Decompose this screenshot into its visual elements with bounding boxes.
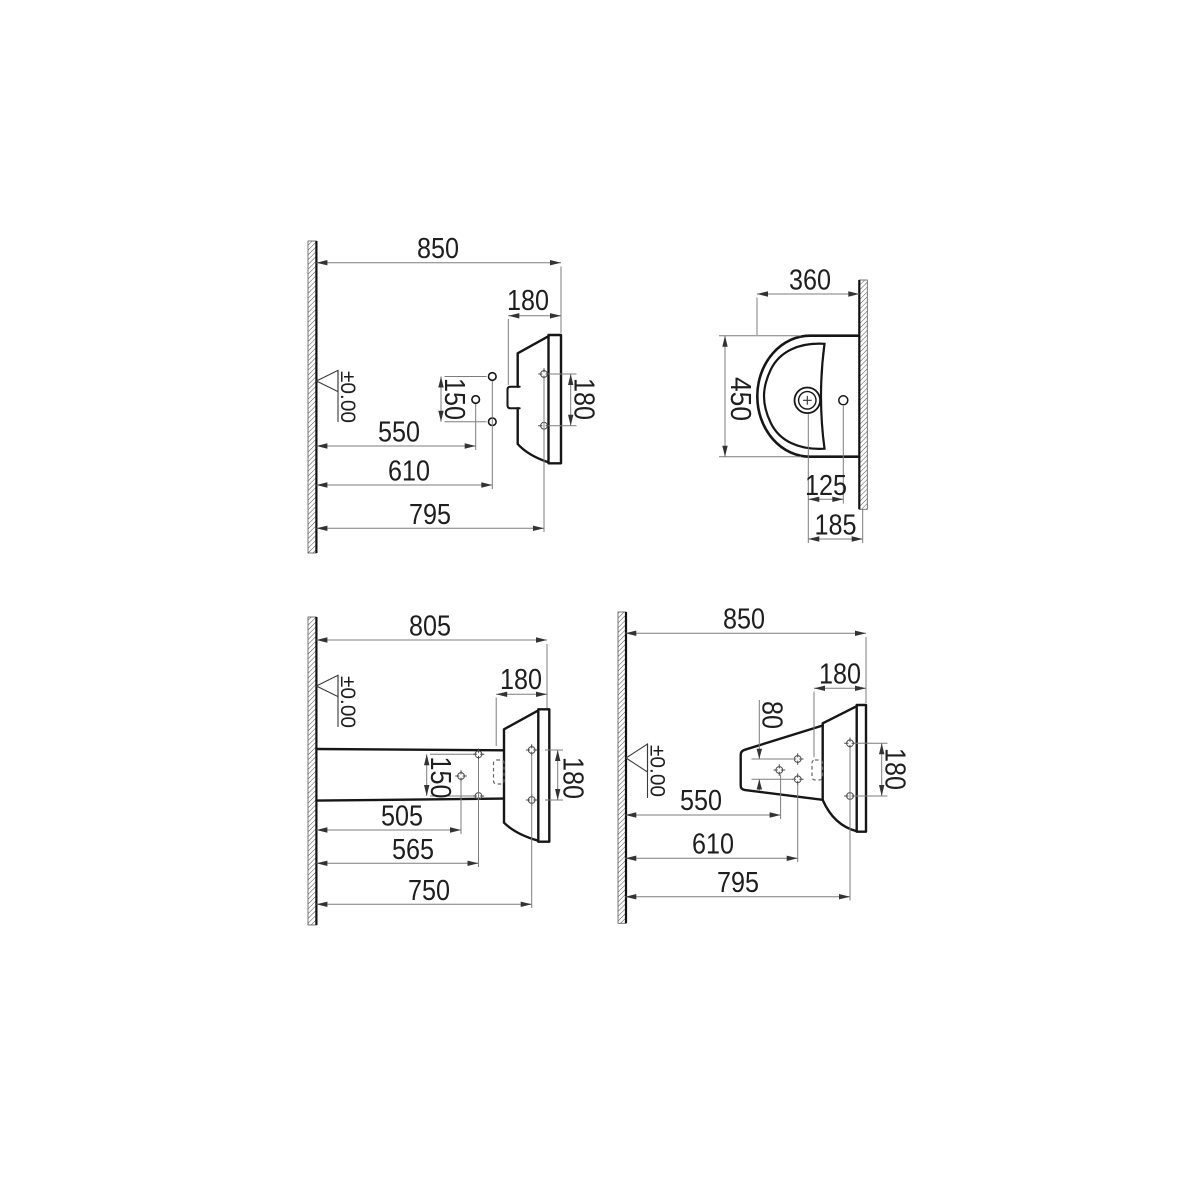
- dim-label-795: 795: [409, 499, 451, 531]
- dim-label-180: 180: [507, 285, 549, 317]
- dim-label-185: 185: [815, 510, 857, 542]
- view-side-elevation-shroud: ±0.00 850 180 80 550 610 795 180: [618, 604, 911, 924]
- basin-body-profile: [823, 706, 857, 831]
- siphon-hidden-outline: [812, 760, 823, 780]
- dim-label-180: 180: [819, 658, 861, 690]
- waste-hole: [472, 396, 480, 404]
- waste-hole-mark: [774, 764, 786, 776]
- shroud-profile: [741, 726, 823, 800]
- dim-label-80: 80: [756, 701, 788, 729]
- basin-rim-edge: [549, 335, 562, 463]
- drain-center-mark: [803, 396, 812, 405]
- supply-hole: [489, 373, 497, 381]
- wall-hatch: [308, 241, 316, 553]
- wall-hatch: [859, 280, 867, 509]
- dim-label-750: 750: [408, 875, 450, 907]
- view-plan: 360 450 125 185: [719, 265, 867, 544]
- dim-label-850: 850: [417, 233, 459, 265]
- dim-label-180: 180: [500, 664, 542, 696]
- basin-body-profile: [504, 710, 538, 840]
- washbasin-installation-drawing: ±0.00 850 180 150 550 610 795 180: [0, 0, 1200, 1200]
- view-side-elevation: ±0.00 850 180 150 550 610 795 180: [308, 233, 600, 553]
- dim-label-180-holes: 180: [879, 748, 911, 790]
- dim-arrow-80: [757, 749, 762, 759]
- dim-label-180-holes: 180: [568, 378, 600, 420]
- dim-label-505: 505: [381, 801, 423, 833]
- fixing-hole-mark: [526, 744, 538, 756]
- dim-label-565: 565: [392, 834, 434, 866]
- dim-label-180-holes: 180: [557, 757, 589, 799]
- basin-rim-edge: [538, 709, 549, 841]
- overflow-tab: [508, 387, 520, 409]
- wall-hatch: [308, 617, 316, 925]
- dim-label-150: 150: [438, 378, 470, 420]
- view-side-elevation-short: ±0.00 805 180 150 505 565 750 180: [308, 611, 589, 926]
- wall-hatch: [618, 612, 626, 923]
- tap-hole: [839, 396, 848, 405]
- dim-label-805: 805: [409, 611, 451, 643]
- dim-label-850: 850: [723, 604, 765, 636]
- dim-label-610: 610: [388, 456, 430, 488]
- dim-label-550: 550: [378, 417, 420, 449]
- dim-label-450: 450: [724, 377, 756, 421]
- dim-label-125: 125: [805, 470, 847, 502]
- datum-label: ±0.00: [336, 371, 359, 423]
- datum-label: ±0.00: [336, 676, 359, 728]
- datum-label: ±0.00: [646, 745, 669, 797]
- dim-label-360: 360: [789, 265, 831, 297]
- dim-label-795: 795: [717, 867, 759, 899]
- datum-triangle-icon: [316, 370, 338, 391]
- basin-rim-edge: [857, 705, 866, 832]
- dim-arrow-80: [757, 779, 762, 789]
- datum-triangle-icon: [316, 675, 338, 696]
- dim-label-550: 550: [680, 785, 722, 817]
- dim-label-610: 610: [692, 829, 734, 861]
- siphon-hidden-outline: [494, 760, 505, 784]
- dim-label-150: 150: [424, 757, 456, 799]
- datum-triangle-icon: [626, 744, 648, 772]
- technical-drawing-page: ±0.00 850 180 150 550 610 795 180: [0, 0, 1200, 1200]
